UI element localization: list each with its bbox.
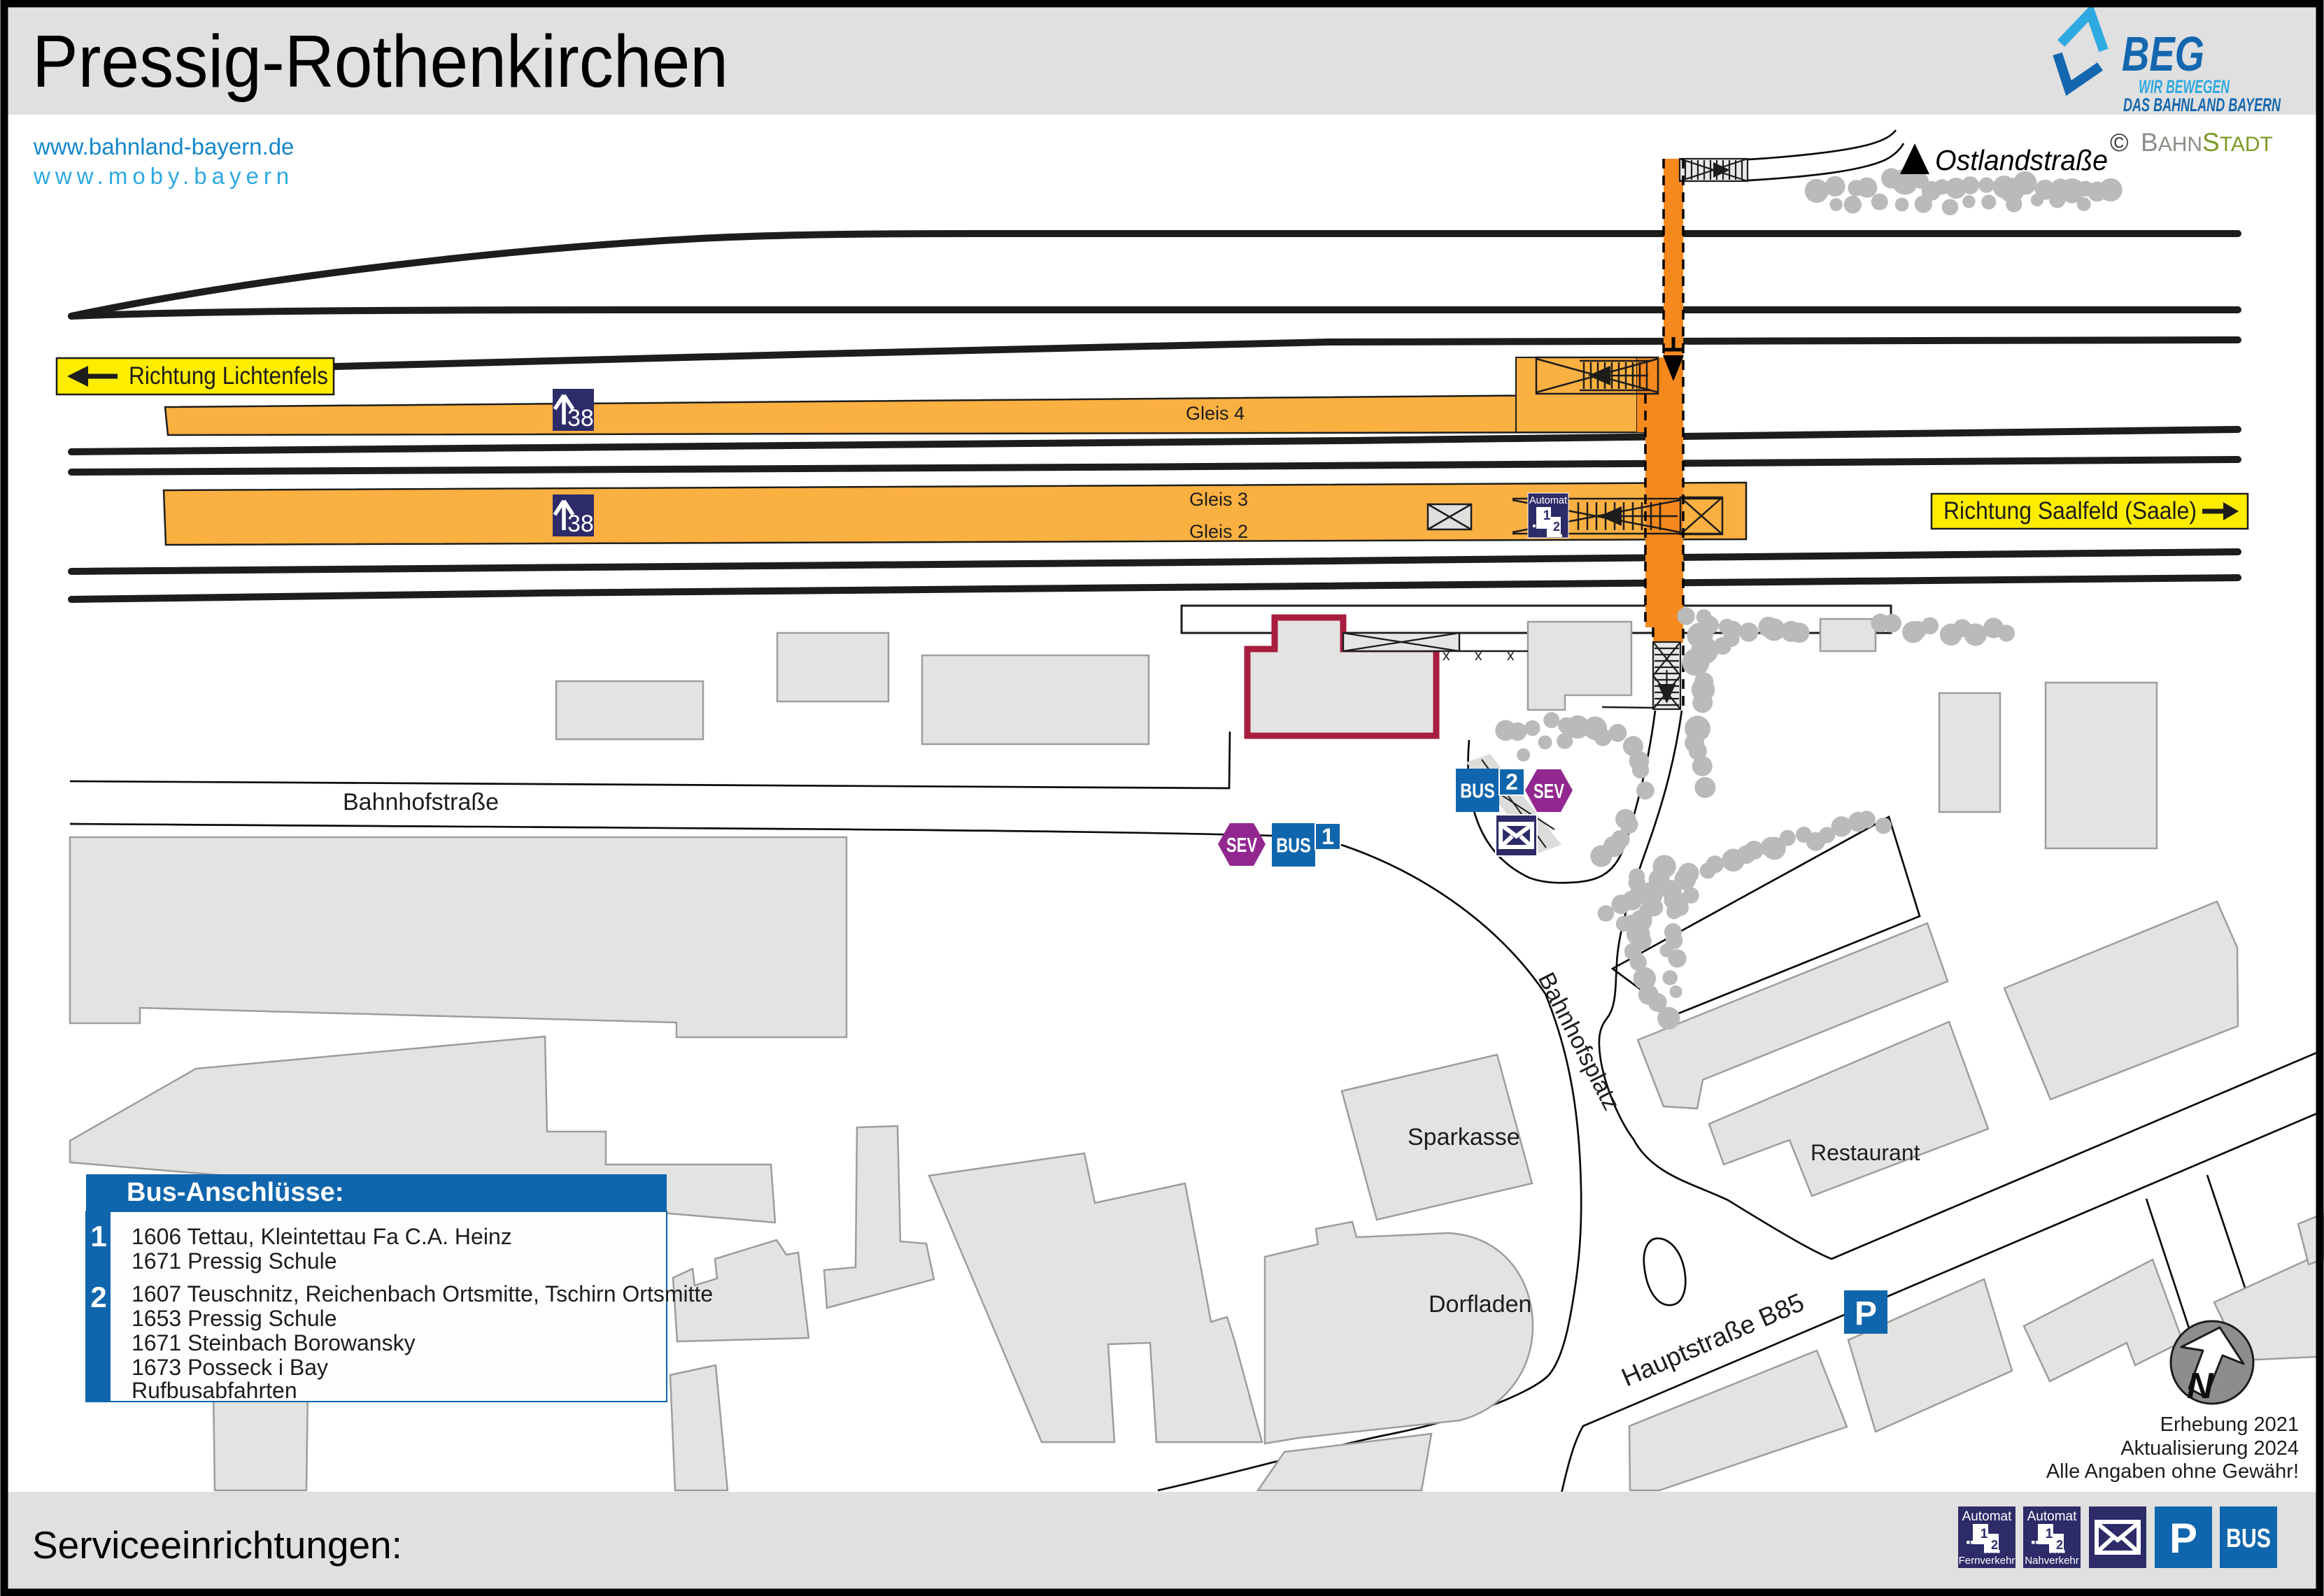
svg-text:Automat: Automat	[2027, 1509, 2077, 1524]
svg-text:©: ©	[2110, 128, 2129, 157]
svg-text:1607 Teuschnitz, Reichenbach O: 1607 Teuschnitz, Reichenbach Ortsmitte, …	[132, 1281, 713, 1306]
svg-text:1606 Tettau, Kleintettau Fa C.: 1606 Tettau, Kleintettau Fa C.A. Heinz	[132, 1224, 512, 1249]
svg-text:Aktualisierung 2024: Aktualisierung 2024	[2120, 1437, 2299, 1460]
svg-text:1: 1	[1322, 824, 1334, 849]
svg-text:x: x	[1443, 648, 1450, 664]
svg-text:Gleis 2: Gleis 2	[1189, 521, 1248, 542]
svg-text:BUS: BUS	[1276, 834, 1311, 857]
svg-text:Richtung Saalfeld (Saale): Richtung Saalfeld (Saale)	[1943, 497, 2197, 525]
svg-text:Gleis 4: Gleis 4	[1186, 403, 1245, 424]
svg-text:1671 Steinbach Borowansky: 1671 Steinbach Borowansky	[132, 1330, 416, 1355]
svg-text:Richtung Lichtenfels: Richtung Lichtenfels	[129, 362, 328, 390]
svg-text:1: 1	[90, 1220, 106, 1253]
svg-text:Sparkasse: Sparkasse	[1408, 1124, 1520, 1150]
svg-text:BEG: BEG	[2122, 27, 2204, 81]
svg-text:Fernverkehr: Fernverkehr	[1959, 1555, 2015, 1567]
svg-text:Bus-Anschlüsse:: Bus-Anschlüsse:	[127, 1178, 343, 1207]
svg-text:Dorfladen: Dorfladen	[1429, 1291, 1531, 1318]
svg-text:BUS: BUS	[2226, 1524, 2271, 1553]
svg-text:BUS: BUS	[1460, 780, 1495, 802]
svg-text:BAHNSTADT: BAHNSTADT	[2141, 128, 2273, 157]
svg-text:x: x	[1475, 648, 1482, 664]
svg-text:2: 2	[90, 1281, 106, 1313]
svg-text:38: 38	[567, 405, 594, 432]
svg-text:Erhebung 2021: Erhebung 2021	[2160, 1413, 2299, 1436]
svg-text:Restaurant: Restaurant	[1811, 1140, 1920, 1165]
svg-text:Gleis 3: Gleis 3	[1189, 489, 1248, 510]
svg-text:1653 Pressig Schule: 1653 Pressig Schule	[132, 1306, 337, 1331]
svg-text:x: x	[1507, 648, 1515, 664]
svg-text:1: 1	[1981, 1527, 1988, 1541]
svg-text:www.moby.bayern: www.moby.bayern	[33, 163, 294, 189]
svg-text:1671 Pressig Schule: 1671 Pressig Schule	[132, 1248, 337, 1274]
svg-text:Pressig-Rothenkirchen: Pressig-Rothenkirchen	[32, 20, 728, 103]
svg-text:Automat: Automat	[1529, 495, 1567, 506]
svg-text:Automat: Automat	[1962, 1509, 2012, 1524]
svg-text:Nahverkehr: Nahverkehr	[2025, 1555, 2079, 1567]
svg-text:P: P	[1855, 1295, 1877, 1332]
svg-text:Alle Angaben ohne Gewähr!: Alle Angaben ohne Gewähr!	[2046, 1460, 2299, 1483]
svg-text:38: 38	[567, 511, 594, 537]
svg-text:2: 2	[1505, 769, 1518, 795]
svg-text:Rufbusabfahrten: Rufbusabfahrten	[132, 1378, 297, 1403]
svg-text:Bahnhofstraße: Bahnhofstraße	[343, 789, 499, 815]
svg-text:DAS BAHNLAND BAYERN: DAS BAHNLAND BAYERN	[2123, 94, 2281, 115]
svg-text:SEV: SEV	[1533, 781, 1564, 803]
svg-text:1673 Posseck i Bay: 1673 Posseck i Bay	[132, 1355, 328, 1380]
svg-text:www.bahnland-bayern.de: www.bahnland-bayern.de	[33, 134, 294, 159]
svg-text:Serviceeinrichtungen:: Serviceeinrichtungen:	[32, 1523, 402, 1567]
svg-text:N: N	[2187, 1366, 2214, 1406]
svg-text:1: 1	[1543, 508, 1551, 523]
svg-text:SEV: SEV	[1226, 834, 1257, 857]
svg-text:P: P	[2169, 1515, 2197, 1562]
svg-text:Ostlandstraße: Ostlandstraße	[1935, 144, 2108, 176]
svg-text:1: 1	[2046, 1527, 2053, 1541]
svg-text:2: 2	[1553, 520, 1560, 534]
